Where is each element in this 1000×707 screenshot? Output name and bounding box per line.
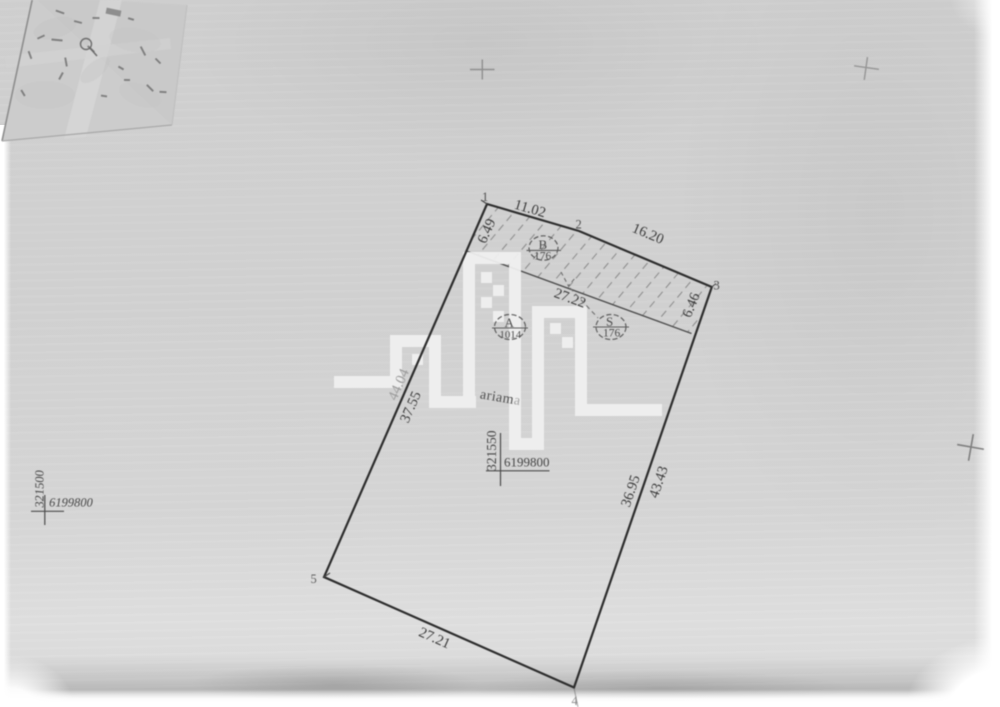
svg-text:5: 5: [311, 572, 317, 586]
svg-text:1: 1: [482, 190, 488, 204]
svg-text:176: 176: [534, 251, 552, 263]
svg-text:4: 4: [572, 694, 579, 707]
svg-text:A: A: [505, 315, 515, 330]
svg-text:321500: 321500: [33, 469, 47, 508]
svg-text:36.95: 36.95: [618, 473, 644, 509]
svg-text:3: 3: [714, 279, 720, 293]
svg-text:6.46: 6.46: [679, 290, 703, 320]
svg-text:2: 2: [576, 218, 582, 232]
svg-text:1014: 1014: [500, 329, 522, 341]
svg-text:176: 176: [603, 328, 621, 340]
svg-text:27.21: 27.21: [416, 625, 452, 653]
svg-text:321550: 321550: [484, 430, 499, 471]
svg-text:6199800: 6199800: [504, 455, 550, 470]
svg-text:6199800: 6199800: [48, 496, 94, 510]
svg-text:6.49: 6.49: [475, 216, 500, 246]
svg-text:16.20: 16.20: [630, 220, 666, 247]
